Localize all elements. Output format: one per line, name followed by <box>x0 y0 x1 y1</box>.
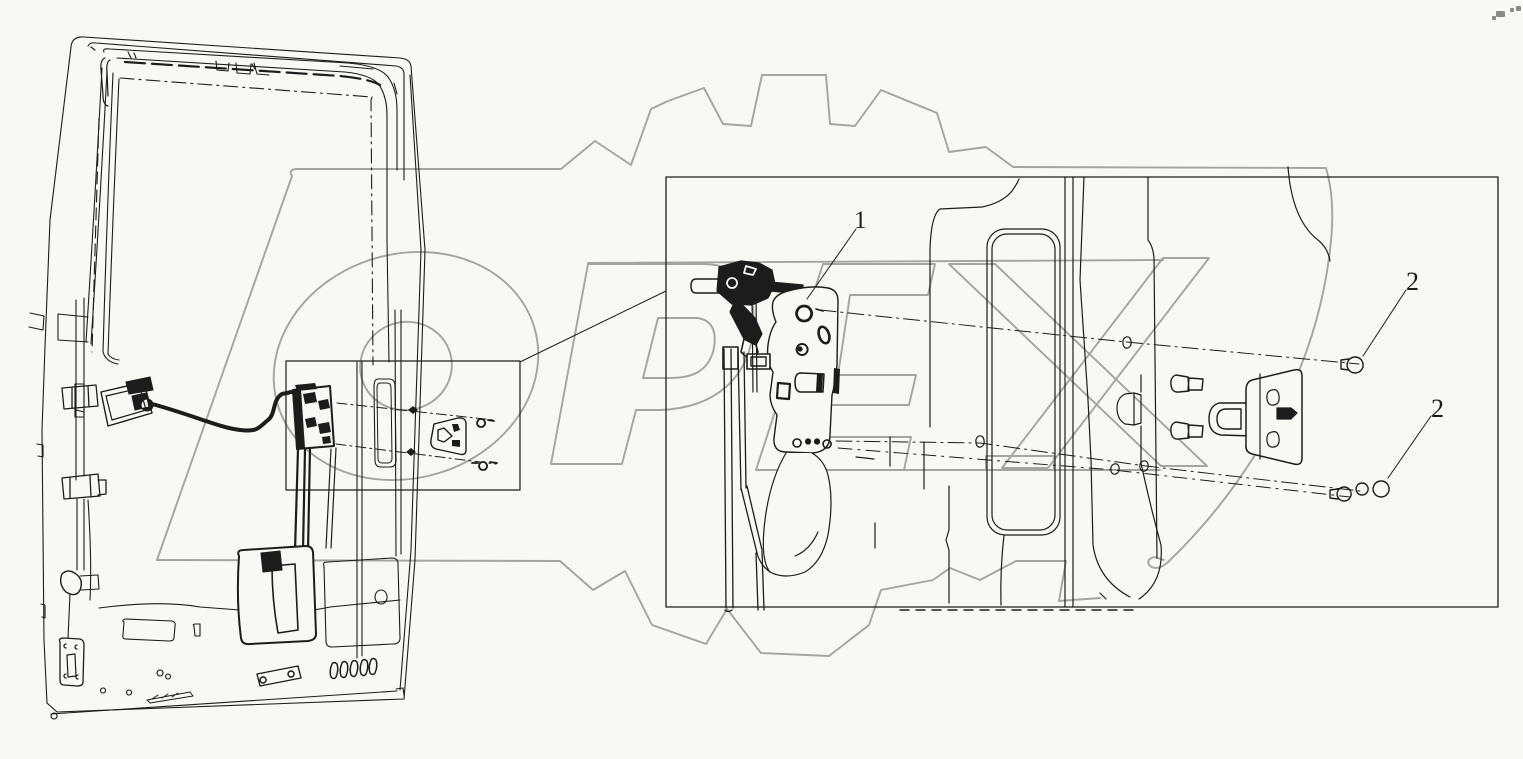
svg-text:2: 2 <box>1431 394 1444 423</box>
svg-text:2: 2 <box>1406 267 1419 296</box>
svg-text:1: 1 <box>854 207 867 234</box>
